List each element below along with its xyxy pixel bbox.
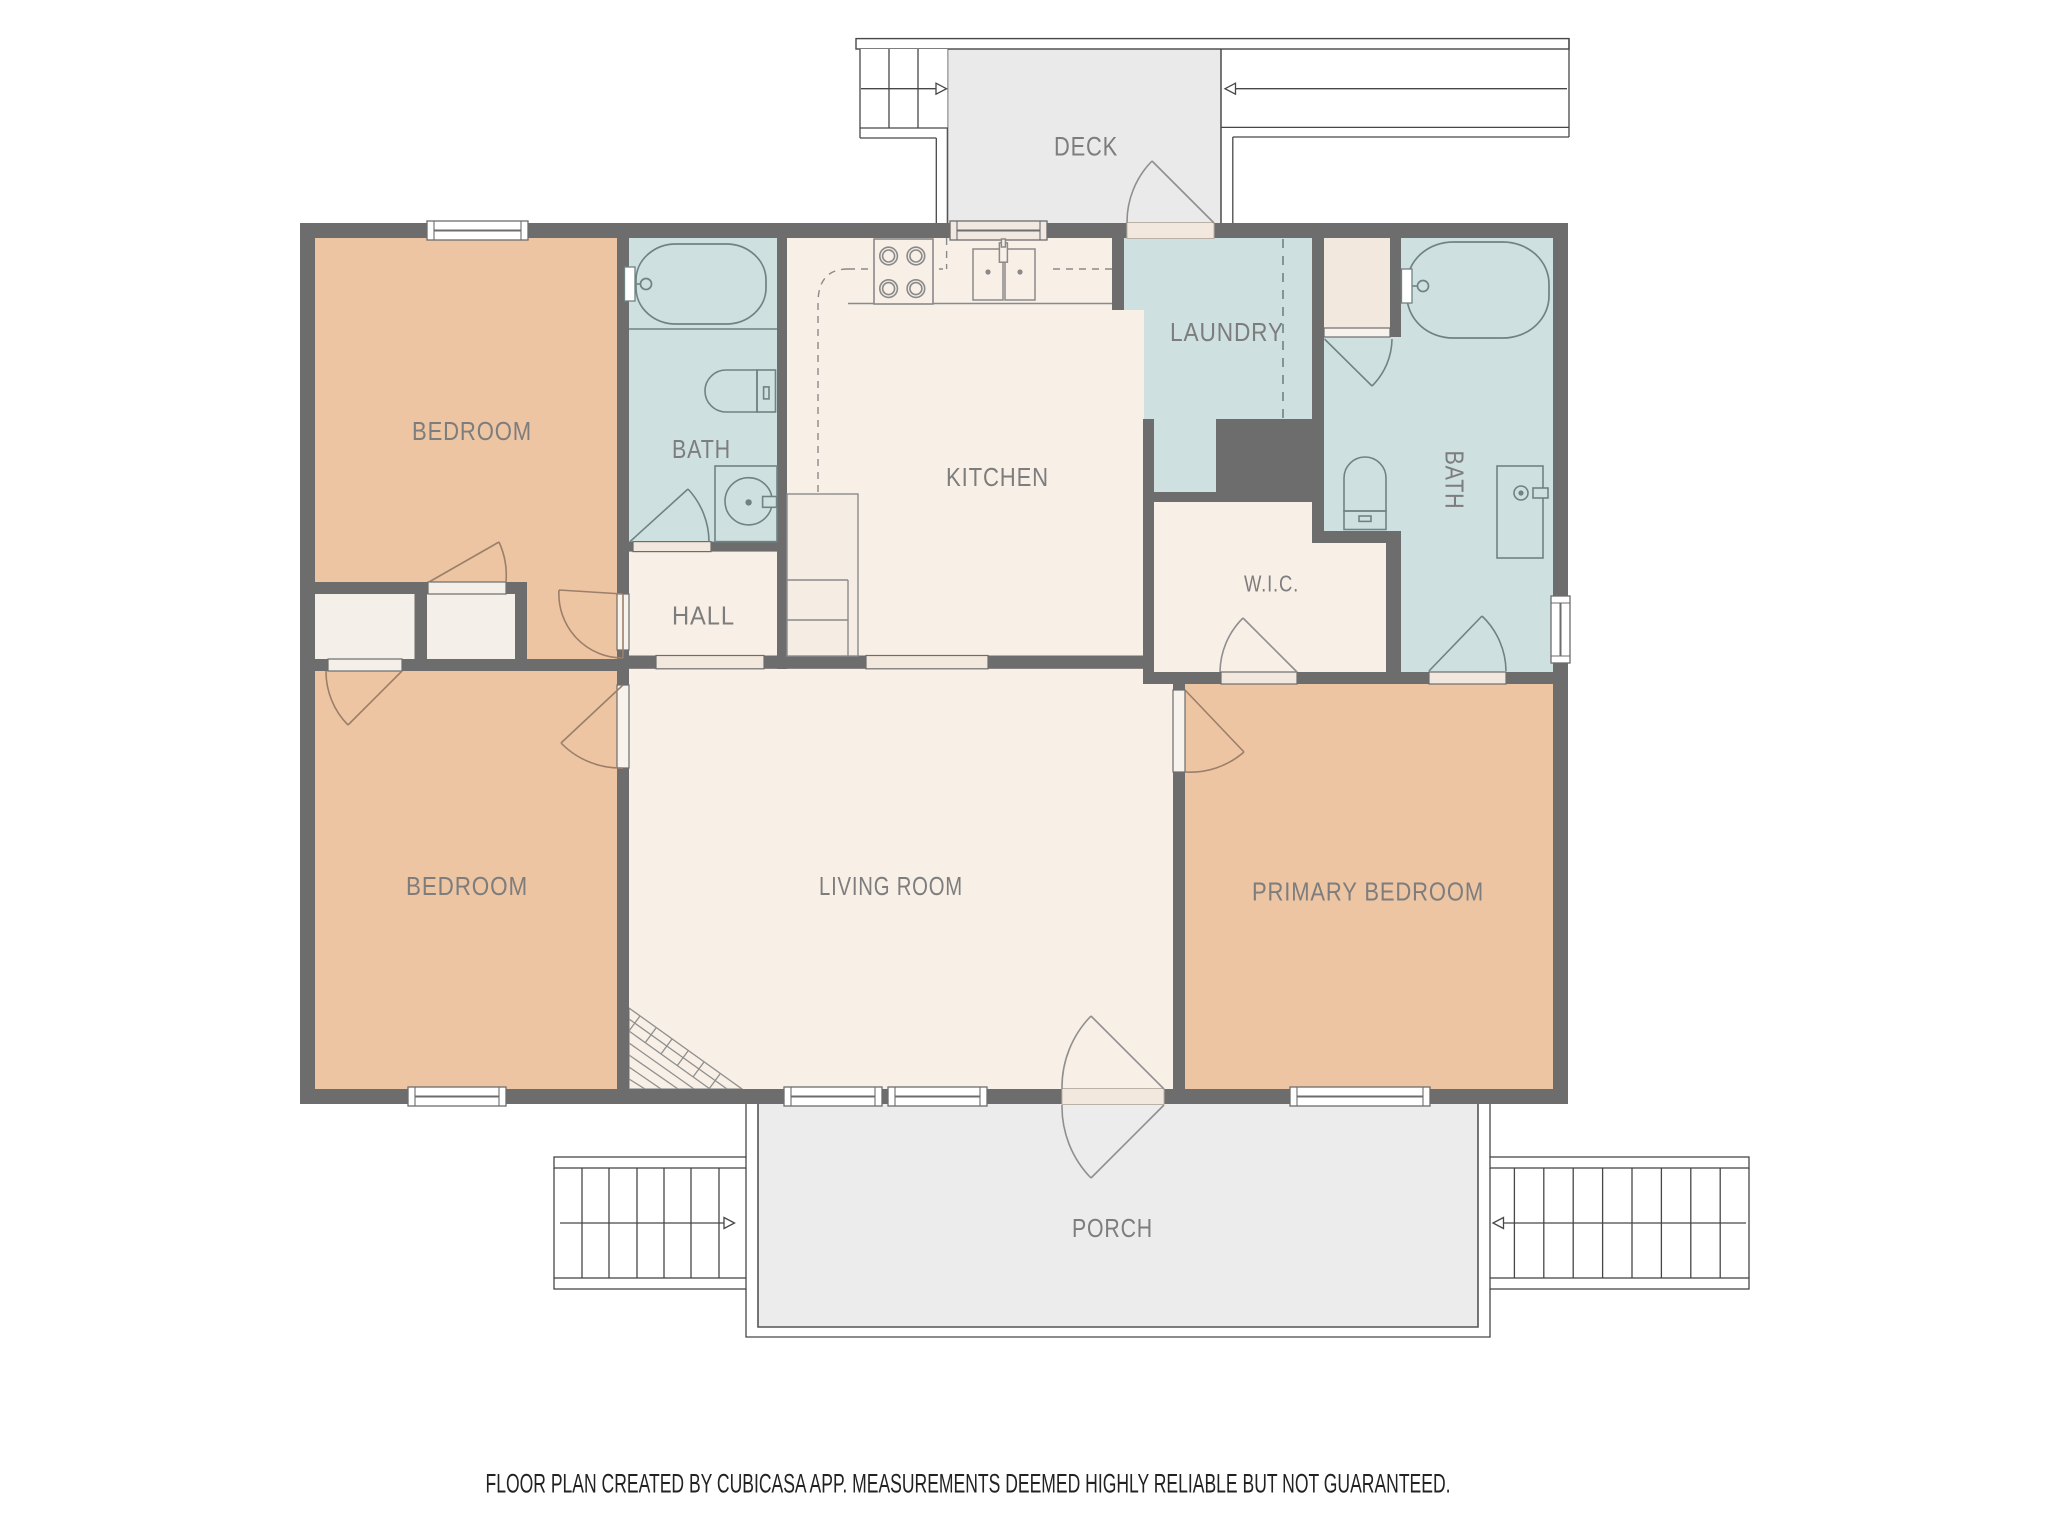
svg-text:PORCH: PORCH [1072,1213,1153,1243]
svg-text:LAUNDRY: LAUNDRY [1170,317,1284,347]
svg-text:KITCHEN: KITCHEN [946,462,1049,492]
svg-text:BATH: BATH [672,434,731,464]
svg-text:W.I.C.: W.I.C. [1244,571,1299,597]
svg-text:BEDROOM: BEDROOM [406,871,528,901]
svg-text:LIVING ROOM: LIVING ROOM [819,871,963,901]
svg-text:BEDROOM: BEDROOM [412,416,532,446]
svg-text:DECK: DECK [1054,132,1118,162]
svg-text:FLOOR PLAN CREATED BY CUBICASA: FLOOR PLAN CREATED BY CUBICASA APP. MEAS… [486,1469,1451,1499]
svg-text:BATH: BATH [1440,451,1470,510]
svg-text:PRIMARY BEDROOM: PRIMARY BEDROOM [1252,877,1484,907]
svg-text:HALL: HALL [672,601,735,631]
